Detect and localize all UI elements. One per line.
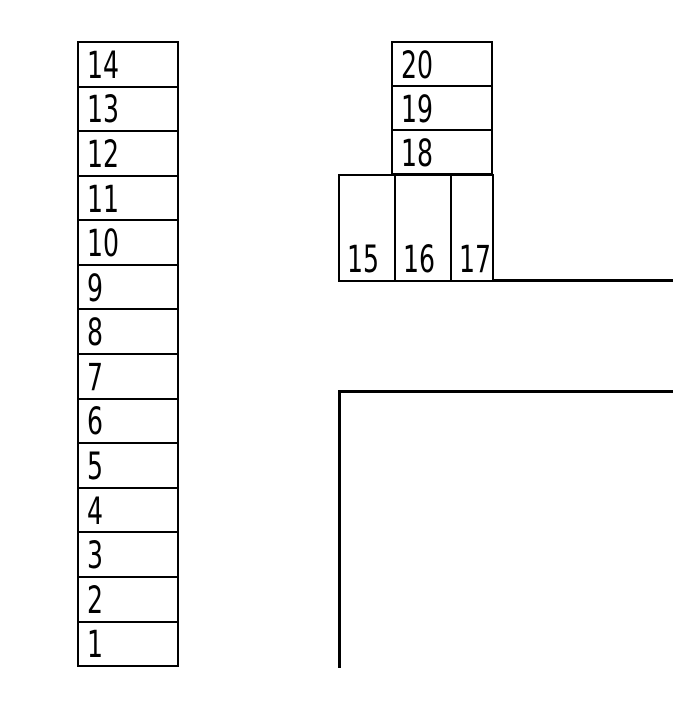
box-label: 3 [87,537,103,574]
box-label: 12 [87,136,119,173]
box-label: 14 [87,47,119,84]
box-label: 13 [87,91,119,128]
ground-line [492,279,673,282]
numbered-box: 17 [452,176,506,280]
box-label: 9 [87,270,103,307]
numbered-box: 6 [79,400,177,445]
box-label: 15 [347,241,379,278]
numbered-box: 19 [393,87,491,131]
box-label: 2 [87,582,103,619]
box-label: 17 [459,241,491,278]
numbered-box: 5 [79,444,177,489]
numbered-box: 4 [79,489,177,534]
box-label: 7 [87,359,103,396]
left-box-stack: 14 13 12 11 10 9 8 7 6 5 4 3 2 1 [77,41,179,667]
numbered-box: 11 [79,177,177,222]
numbered-box: 12 [79,132,177,177]
numbered-box: 13 [79,88,177,133]
right-box-stack: 20 19 18 [391,41,493,175]
box-label: 20 [401,47,433,84]
numbered-box: 9 [79,266,177,311]
numbered-box: 10 [79,221,177,266]
numbered-box: 15 [340,176,396,280]
box-label: 1 [87,626,103,663]
box-label: 18 [401,135,433,172]
numbered-box: 8 [79,310,177,355]
corner-vertical-line [338,390,341,668]
box-label: 16 [403,241,435,278]
numbered-box: 3 [79,533,177,578]
numbered-box: 2 [79,578,177,623]
corner-horizontal-line [338,390,673,393]
numbered-box: 14 [79,43,177,88]
diagram-canvas: 14 13 12 11 10 9 8 7 6 5 4 3 2 1 20 19 1… [0,0,697,702]
right-box-row: 15 16 17 [338,174,494,282]
numbered-box: 18 [393,131,491,173]
numbered-box: 16 [396,176,452,280]
box-label: 8 [87,314,103,351]
box-label: 10 [87,225,119,262]
box-label: 6 [87,403,103,440]
box-label: 19 [401,91,433,128]
box-label: 11 [87,181,119,218]
box-label: 5 [87,448,103,485]
numbered-box: 1 [79,623,177,666]
box-label: 4 [87,493,103,530]
numbered-box: 20 [393,43,491,87]
numbered-box: 7 [79,355,177,400]
